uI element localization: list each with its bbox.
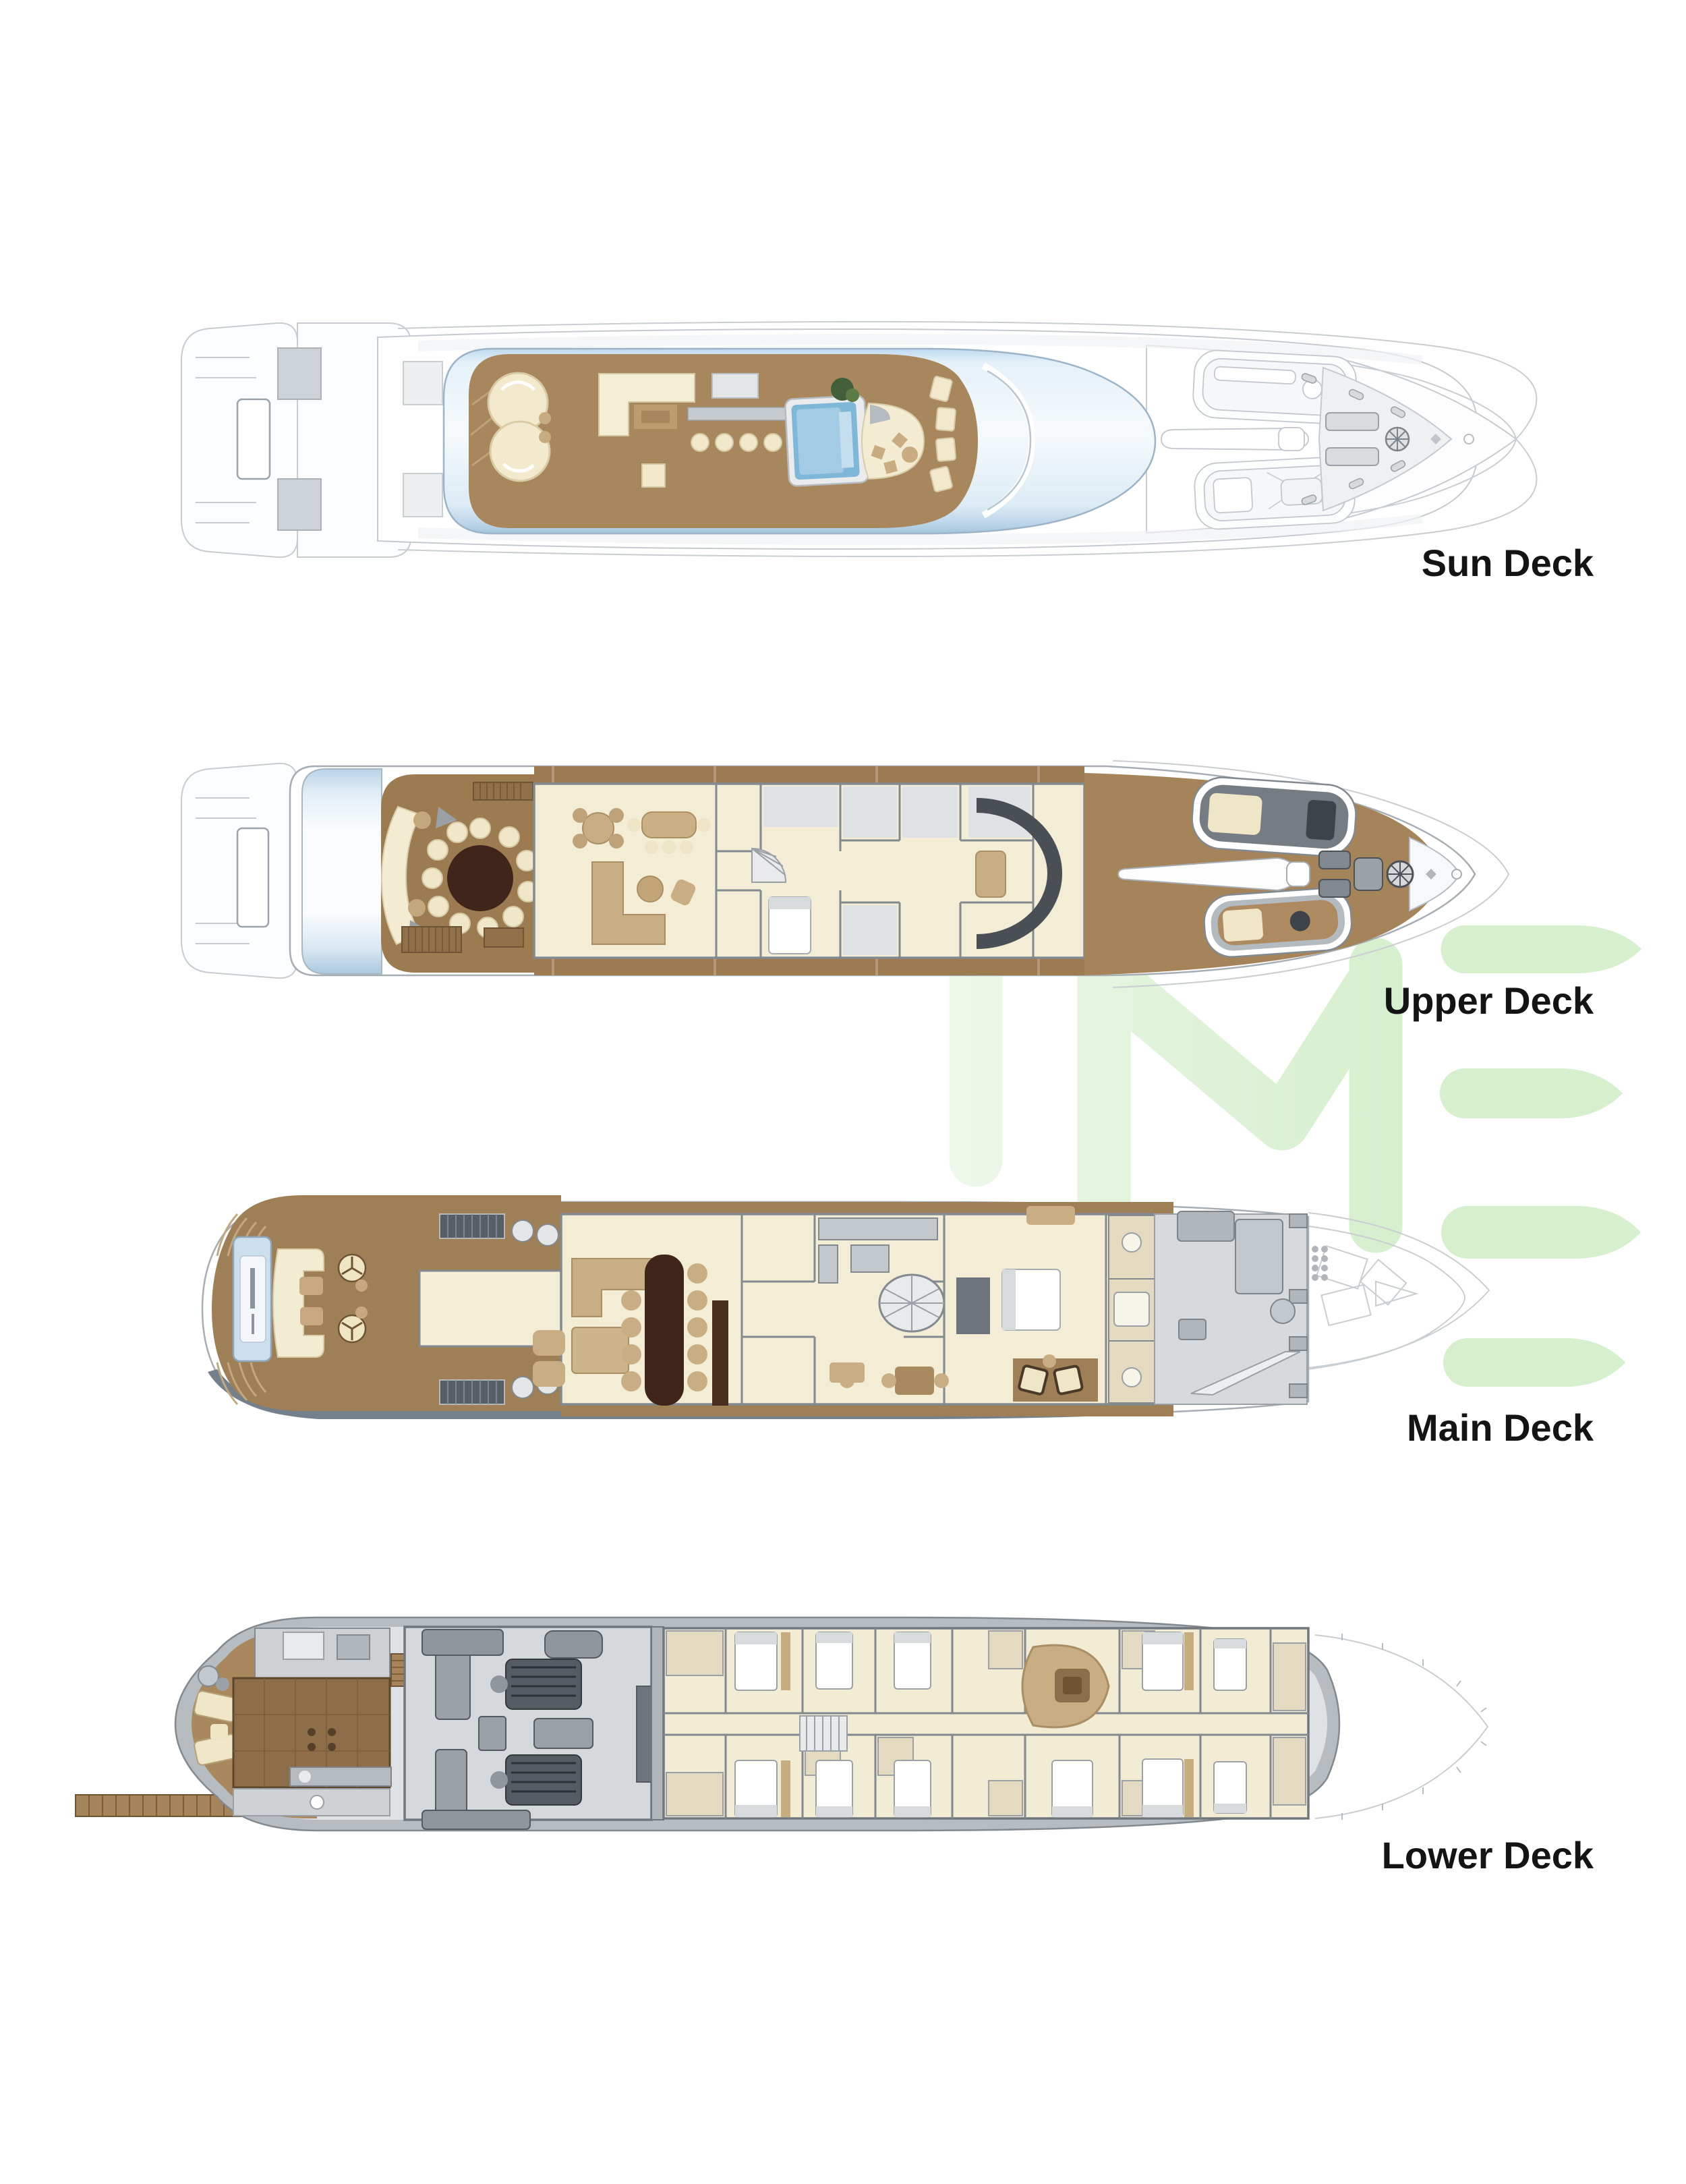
svg-text:Sun Deck: Sun Deck bbox=[1422, 542, 1594, 584]
svg-text:Main Deck: Main Deck bbox=[1407, 1406, 1594, 1449]
svg-text:Lower Deck: Lower Deck bbox=[1382, 1834, 1594, 1876]
svg-text:Upper Deck: Upper Deck bbox=[1384, 979, 1594, 1022]
